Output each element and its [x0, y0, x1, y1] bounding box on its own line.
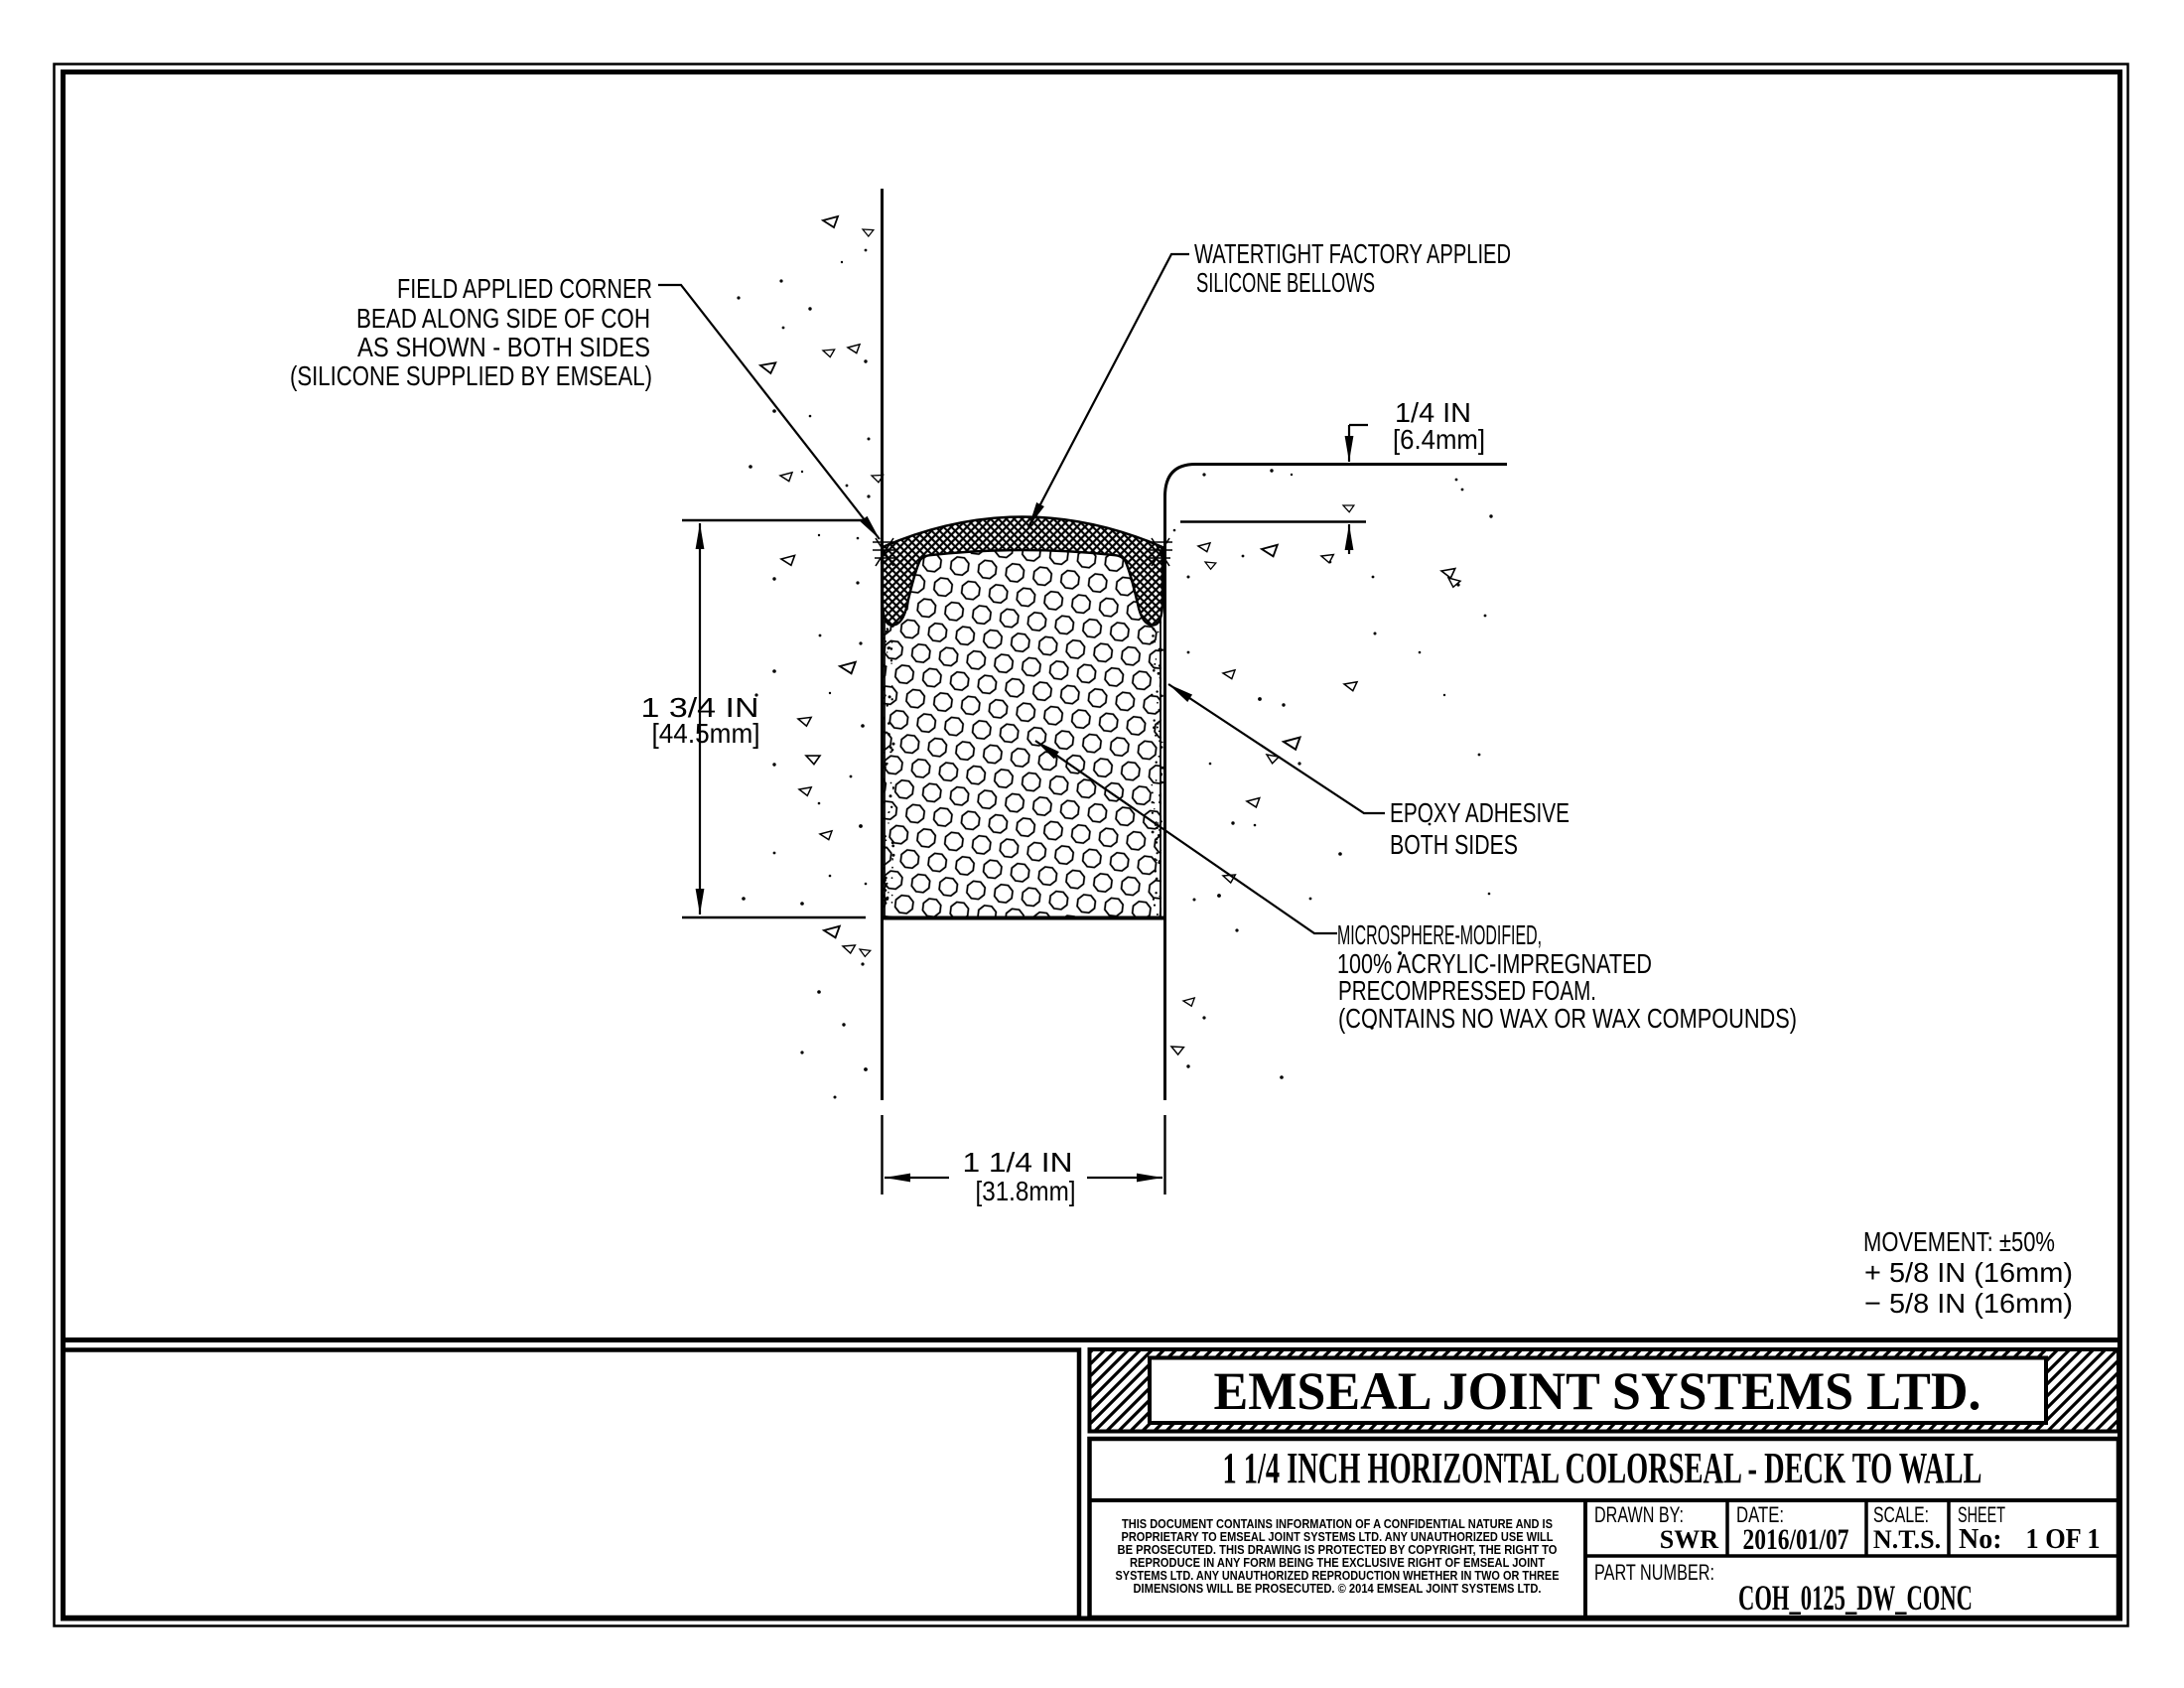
svg-text:AS SHOWN - BOTH SIDES: AS SHOWN - BOTH SIDES [357, 332, 650, 362]
svg-text:DIMENSIONS WILL BE PROSECUTED.: DIMENSIONS WILL BE PROSECUTED. © 2014 EM… [1134, 1581, 1542, 1596]
svg-text:PRECOMPRESSED FOAM.: PRECOMPRESSED FOAM. [1338, 975, 1596, 1006]
svg-text:EMSEAL JOINT SYSTEMS LTD.: EMSEAL JOINT SYSTEMS LTD. [1214, 1361, 1981, 1421]
svg-text:(SILICONE SUPPLIED BY EMSEAL): (SILICONE SUPPLIED BY EMSEAL) [290, 360, 652, 391]
svg-text:SWR: SWR [1660, 1525, 1718, 1554]
svg-text:1 1/4 IN: 1 1/4 IN [963, 1147, 1073, 1178]
svg-text:1 OF 1: 1 OF 1 [2026, 1524, 2101, 1555]
svg-text:SILICONE BELLOWS: SILICONE BELLOWS [1196, 267, 1375, 298]
svg-text:COH_0125_DW_CONC: COH_0125_DW_CONC [1738, 1578, 1973, 1618]
svg-text:1 1/4 INCH HORIZONTAL COLORSEA: 1 1/4 INCH HORIZONTAL COLORSEAL - DECK T… [1223, 1444, 1982, 1492]
svg-text:2016/01/07: 2016/01/07 [1743, 1523, 1849, 1556]
svg-text:BEAD ALONG SIDE OF COH: BEAD ALONG SIDE OF COH [356, 303, 650, 334]
svg-text:PART NUMBER:: PART NUMBER: [1594, 1560, 1714, 1585]
svg-text:N.T.S.: N.T.S. [1873, 1525, 1941, 1554]
svg-text:MICROSPHERE-MODIFIED,: MICROSPHERE-MODIFIED, [1337, 919, 1542, 950]
svg-text:No:: No: [1959, 1524, 2002, 1555]
svg-text:EPOXY ADHESIVE: EPOXY ADHESIVE [1390, 797, 1570, 828]
svg-text:+ 5/8 IN (16mm): + 5/8 IN (16mm) [1864, 1257, 2073, 1288]
svg-text:DRAWN BY:: DRAWN BY: [1594, 1502, 1684, 1527]
svg-text:BOTH SIDES: BOTH SIDES [1390, 829, 1518, 860]
svg-text:SCALE:: SCALE: [1873, 1502, 1929, 1527]
svg-text:[6.4mm]: [6.4mm] [1393, 424, 1485, 455]
svg-text:[31.8mm]: [31.8mm] [976, 1176, 1076, 1206]
svg-text:[44.5mm]: [44.5mm] [652, 718, 760, 749]
svg-text:− 5/8 IN (16mm): − 5/8 IN (16mm) [1864, 1288, 2073, 1319]
svg-text:MOVEMENT: ±50%: MOVEMENT: ±50% [1863, 1226, 2055, 1257]
svg-text:(CONTAINS NO WAX OR WAX COMPOU: (CONTAINS NO WAX OR WAX COMPOUNDS) [1338, 1003, 1797, 1034]
svg-text:WATERTIGHT FACTORY APPLIED: WATERTIGHT FACTORY APPLIED [1194, 238, 1511, 269]
svg-text:FIELD APPLIED CORNER: FIELD APPLIED CORNER [397, 273, 652, 304]
